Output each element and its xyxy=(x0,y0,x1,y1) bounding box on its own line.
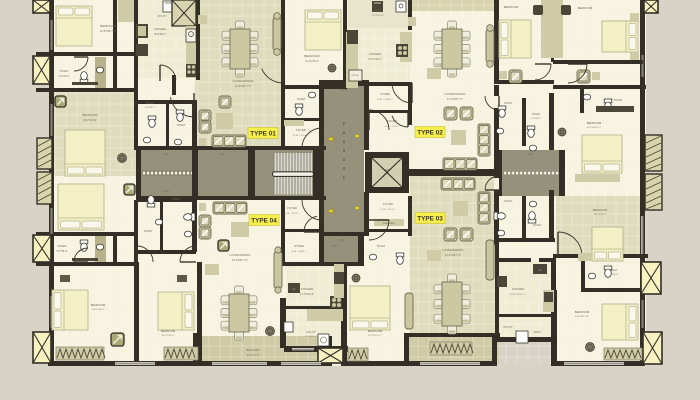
svg-text:5'-6"X8'-6": 5'-6"X8'-6" xyxy=(58,75,69,78)
svg-text:TOILET: TOILET xyxy=(59,69,69,73)
svg-text:STORE: STORE xyxy=(294,244,304,248)
svg-text:14'-6"X10'-0": 14'-6"X10'-0" xyxy=(92,309,105,311)
svg-text:TOILET: TOILET xyxy=(57,244,67,248)
svg-text:11'-3"X10'-3": 11'-3"X10'-3" xyxy=(305,60,319,63)
svg-text:10'-6"X10'-7 ½": 10'-6"X10'-7 ½" xyxy=(100,29,117,33)
svg-text:FOYER: FOYER xyxy=(296,128,306,132)
svg-text:STORE: STORE xyxy=(380,92,390,96)
svg-text:14'-6"X26'-7 ½": 14'-6"X26'-7 ½" xyxy=(232,258,249,262)
svg-text:14'-0"X14'-0": 14'-0"X14'-0" xyxy=(594,214,607,216)
svg-text:BEDROOM: BEDROOM xyxy=(100,24,116,28)
svg-text:TOILET: TOILET xyxy=(296,97,305,101)
svg-text:KITCHEN: KITCHEN xyxy=(154,27,166,31)
svg-text:FOYER: FOYER xyxy=(287,206,297,210)
svg-text:TYPE 01: TYPE 01 xyxy=(250,131,276,138)
svg-text:WASH: WASH xyxy=(534,331,541,334)
svg-text:TOILET: TOILET xyxy=(176,123,185,127)
svg-text:BEDROOM: BEDROOM xyxy=(82,113,98,117)
svg-text:VOID: VOID xyxy=(338,238,344,242)
svg-text:VOID: VOID xyxy=(527,152,533,156)
svg-text:BEDROOM: BEDROOM xyxy=(575,310,590,314)
svg-text:BALCONY: BALCONY xyxy=(246,348,260,352)
svg-text:BEDROOM: BEDROOM xyxy=(504,5,519,9)
svg-text:TOILET: TOILET xyxy=(504,102,513,105)
svg-text:5'-3"X8'-0": 5'-3"X8'-0" xyxy=(531,118,541,120)
svg-text:KITCHEN: KITCHEN xyxy=(301,287,313,291)
svg-text:TOILET: TOILET xyxy=(145,101,154,105)
svg-text:17'-0"X12'-0": 17'-0"X12'-0" xyxy=(300,293,314,296)
svg-text:TOILET: TOILET xyxy=(143,229,152,233)
svg-text:UTILITY: UTILITY xyxy=(503,326,513,329)
svg-text:16'-0"X10'-0": 16'-0"X10'-0" xyxy=(83,119,97,122)
svg-text:LIVING/DINING: LIVING/DINING xyxy=(229,253,251,257)
svg-text:BEDROOM: BEDROOM xyxy=(161,329,176,333)
svg-text:G: G xyxy=(343,167,346,171)
svg-text:TOILET: TOILET xyxy=(614,99,623,102)
svg-text:LIFT: LIFT xyxy=(384,168,390,172)
svg-text:BEDROOM: BEDROOM xyxy=(304,54,320,58)
svg-text:TYPE 02: TYPE 02 xyxy=(417,130,443,137)
svg-text:14'-6"X26'-7 ½": 14'-6"X26'-7 ½" xyxy=(447,97,464,101)
svg-text:FOYER: FOYER xyxy=(383,202,393,206)
svg-text:TOILET: TOILET xyxy=(533,224,542,227)
svg-text:BEDROOM: BEDROOM xyxy=(578,6,593,10)
svg-text:14'-6"X26'-7 ½": 14'-6"X26'-7 ½" xyxy=(445,253,462,257)
svg-text:TOILET: TOILET xyxy=(172,198,181,201)
svg-text:LIVING/DINING: LIVING/DINING xyxy=(442,248,464,252)
svg-text:BEDROOM: BEDROOM xyxy=(587,121,602,125)
svg-text:UTILITY: UTILITY xyxy=(373,9,383,13)
svg-text:UTILITY: UTILITY xyxy=(306,331,316,334)
svg-text:UTILITY: UTILITY xyxy=(157,14,167,18)
svg-text:TOILET: TOILET xyxy=(376,244,385,248)
svg-text:TYPE 04: TYPE 04 xyxy=(251,218,277,225)
svg-text:11'-3"X3'-0": 11'-3"X3'-0" xyxy=(305,336,316,338)
svg-text:14'-6"X26'-7 ½": 14'-6"X26'-7 ½" xyxy=(235,84,252,88)
svg-text:TOILET: TOILET xyxy=(532,113,541,116)
svg-text:5'-3"X8'-0": 5'-3"X8'-0" xyxy=(145,107,155,109)
svg-text:LIVING/DINING: LIVING/DINING xyxy=(444,92,466,96)
svg-text:KITCHEN: KITCHEN xyxy=(369,52,381,56)
svg-text:10'-8"X8'-2": 10'-8"X8'-2" xyxy=(154,33,167,36)
svg-text:FOYER: FOYER xyxy=(387,119,397,123)
svg-text:VOID: VOID xyxy=(163,152,169,156)
svg-text:10'-0"X10'-0": 10'-0"X10'-0" xyxy=(162,335,175,337)
svg-text:KITCHEN: KITCHEN xyxy=(512,287,524,291)
svg-text:14'-0"X11'-10": 14'-0"X11'-10" xyxy=(575,316,589,318)
svg-text:5'-6"X8'-6": 5'-6"X8'-6" xyxy=(56,250,67,253)
svg-text:BEDROOM: BEDROOM xyxy=(91,303,106,307)
svg-text:14'-0"X7'-0": 14'-0"X7'-0" xyxy=(247,354,260,357)
svg-text:BEDROOM: BEDROOM xyxy=(593,208,608,212)
svg-text:VOID: VOID xyxy=(219,152,225,156)
svg-text:FRIDGE: FRIDGE xyxy=(351,75,359,77)
svg-text:TYPE 03: TYPE 03 xyxy=(417,216,443,223)
svg-text:11'-3"X12'-0": 11'-3"X12'-0" xyxy=(368,58,382,61)
svg-text:11'-3"X2'-0": 11'-3"X2'-0" xyxy=(372,15,383,17)
svg-text:VOID: VOID xyxy=(331,245,337,248)
svg-text:LIVING/DINING: LIVING/DINING xyxy=(232,79,254,83)
svg-text:TOILET: TOILET xyxy=(504,200,513,203)
svg-text:VOID: VOID xyxy=(163,189,169,193)
svg-text:BEDROOM: BEDROOM xyxy=(368,329,383,333)
